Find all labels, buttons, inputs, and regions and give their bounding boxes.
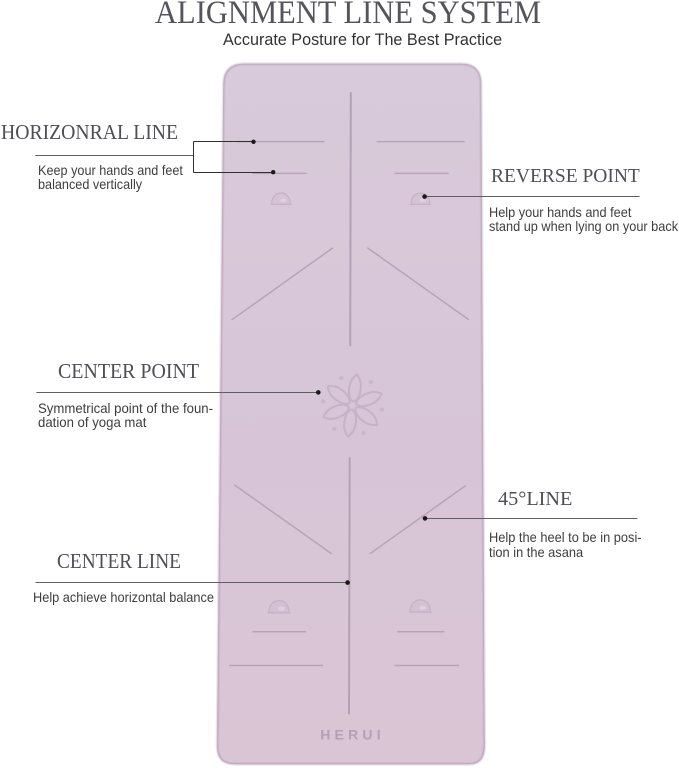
svg-text:HERUI: HERUI bbox=[320, 727, 385, 743]
